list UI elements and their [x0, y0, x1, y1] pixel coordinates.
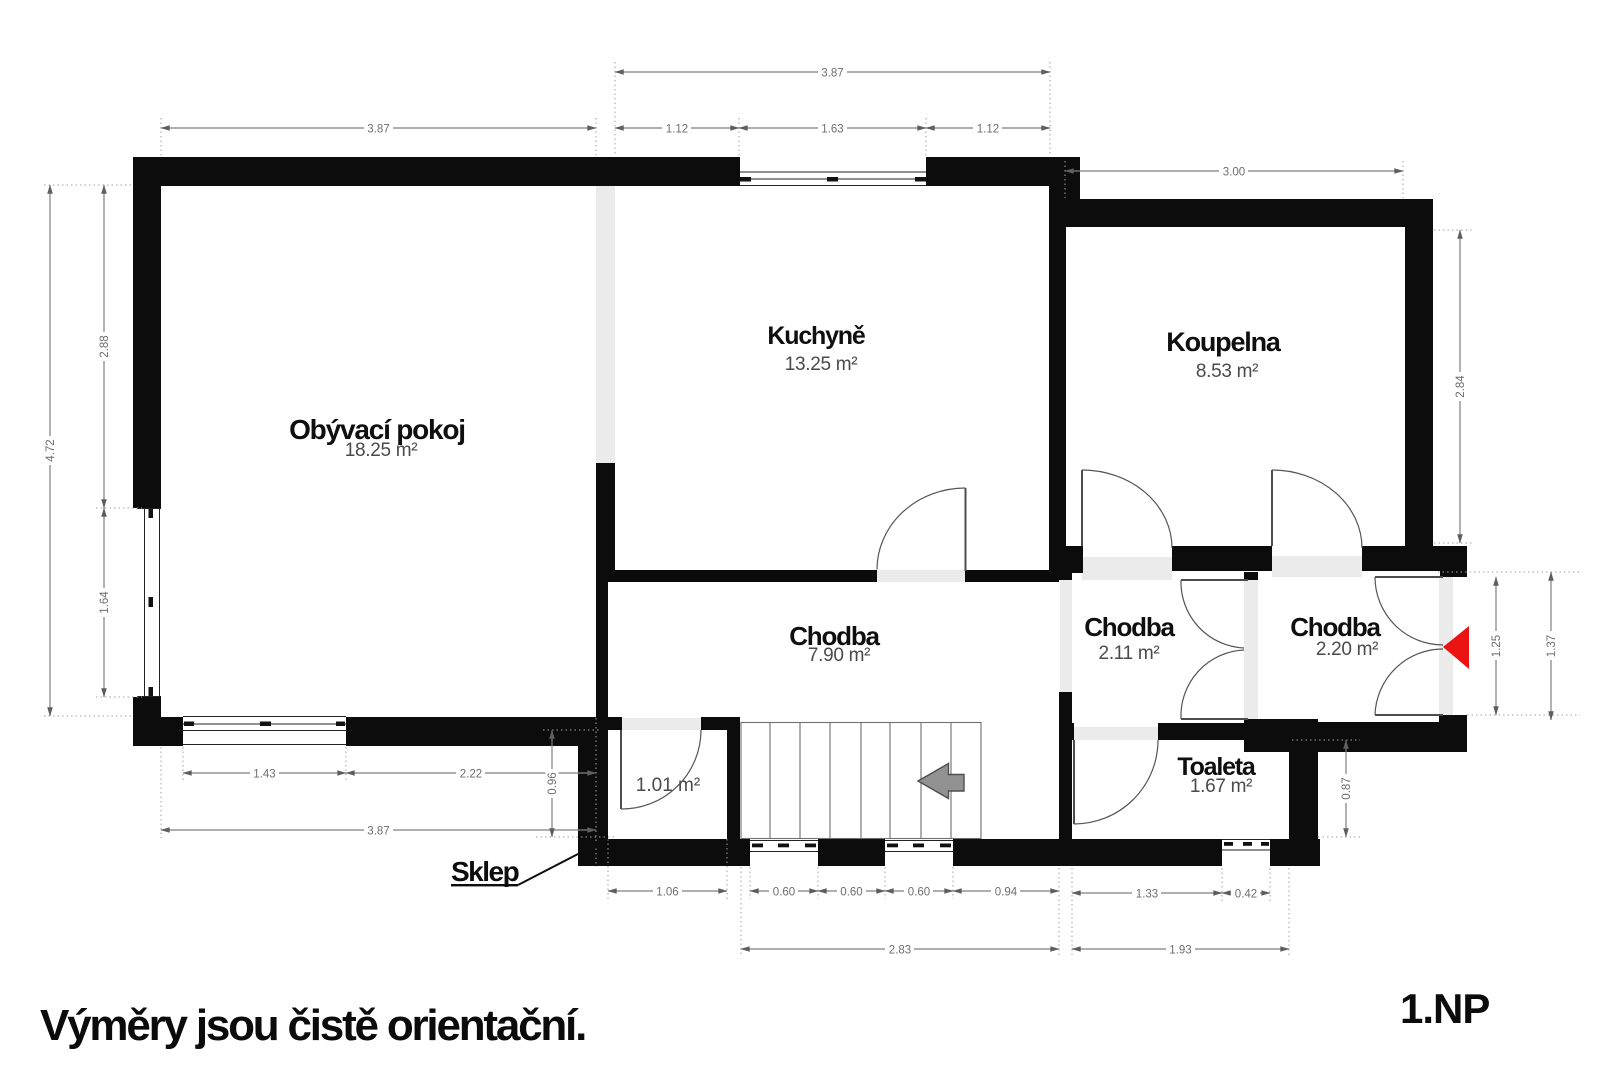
svg-text:1.63: 1.63 [821, 124, 843, 136]
svg-text:Kuchyně: Kuchyně [767, 322, 865, 350]
svg-text:1.NP: 1.NP [1400, 985, 1489, 1032]
svg-text:4.72: 4.72 [45, 439, 57, 461]
svg-text:Chodba: Chodba [1084, 612, 1175, 642]
svg-text:0.94: 0.94 [995, 887, 1018, 899]
svg-text:2.22: 2.22 [460, 769, 482, 781]
svg-text:1.43: 1.43 [253, 769, 275, 781]
svg-text:2.88: 2.88 [99, 335, 111, 357]
svg-text:0.60: 0.60 [908, 887, 930, 899]
svg-text:1.06: 1.06 [656, 887, 678, 899]
svg-text:1.12: 1.12 [977, 124, 999, 136]
svg-text:8.53 m²: 8.53 m² [1196, 361, 1258, 382]
svg-text:0.42: 0.42 [1235, 889, 1257, 901]
svg-text:1.67 m²: 1.67 m² [1190, 776, 1252, 797]
svg-text:0.87: 0.87 [1341, 777, 1353, 799]
svg-text:2.84: 2.84 [1455, 375, 1467, 398]
svg-text:2.83: 2.83 [889, 945, 911, 957]
svg-text:0.60: 0.60 [773, 887, 795, 899]
svg-text:1.64: 1.64 [99, 591, 111, 614]
svg-text:1.12: 1.12 [666, 124, 688, 136]
svg-text:2.11 m²: 2.11 m² [1099, 643, 1160, 664]
svg-text:Sklep: Sklep [451, 856, 519, 887]
svg-text:3.00: 3.00 [1223, 167, 1245, 179]
svg-text:1.33: 1.33 [1136, 889, 1158, 901]
svg-text:3.87: 3.87 [367, 826, 389, 838]
svg-text:13.25 m²: 13.25 m² [785, 354, 858, 375]
svg-text:1.01 m²: 1.01 m² [636, 775, 700, 796]
svg-text:3.87: 3.87 [367, 124, 389, 136]
svg-text:Chodba: Chodba [1290, 612, 1381, 642]
svg-text:7.90 m²: 7.90 m² [808, 645, 870, 666]
svg-text:Koupelna: Koupelna [1166, 327, 1282, 357]
svg-text:0.60: 0.60 [840, 887, 862, 899]
svg-text:1.25: 1.25 [1491, 635, 1503, 657]
svg-text:2.20 m²: 2.20 m² [1316, 639, 1378, 660]
svg-text:0.96: 0.96 [547, 772, 559, 794]
svg-text:3.87: 3.87 [821, 68, 843, 80]
svg-text:Výměry jsou čistě orientační.: Výměry jsou čistě orientační. [40, 1001, 585, 1050]
svg-text:18.25 m²: 18.25 m² [345, 440, 418, 461]
svg-text:1.93: 1.93 [1169, 945, 1191, 957]
svg-text:1.37: 1.37 [1546, 635, 1558, 657]
